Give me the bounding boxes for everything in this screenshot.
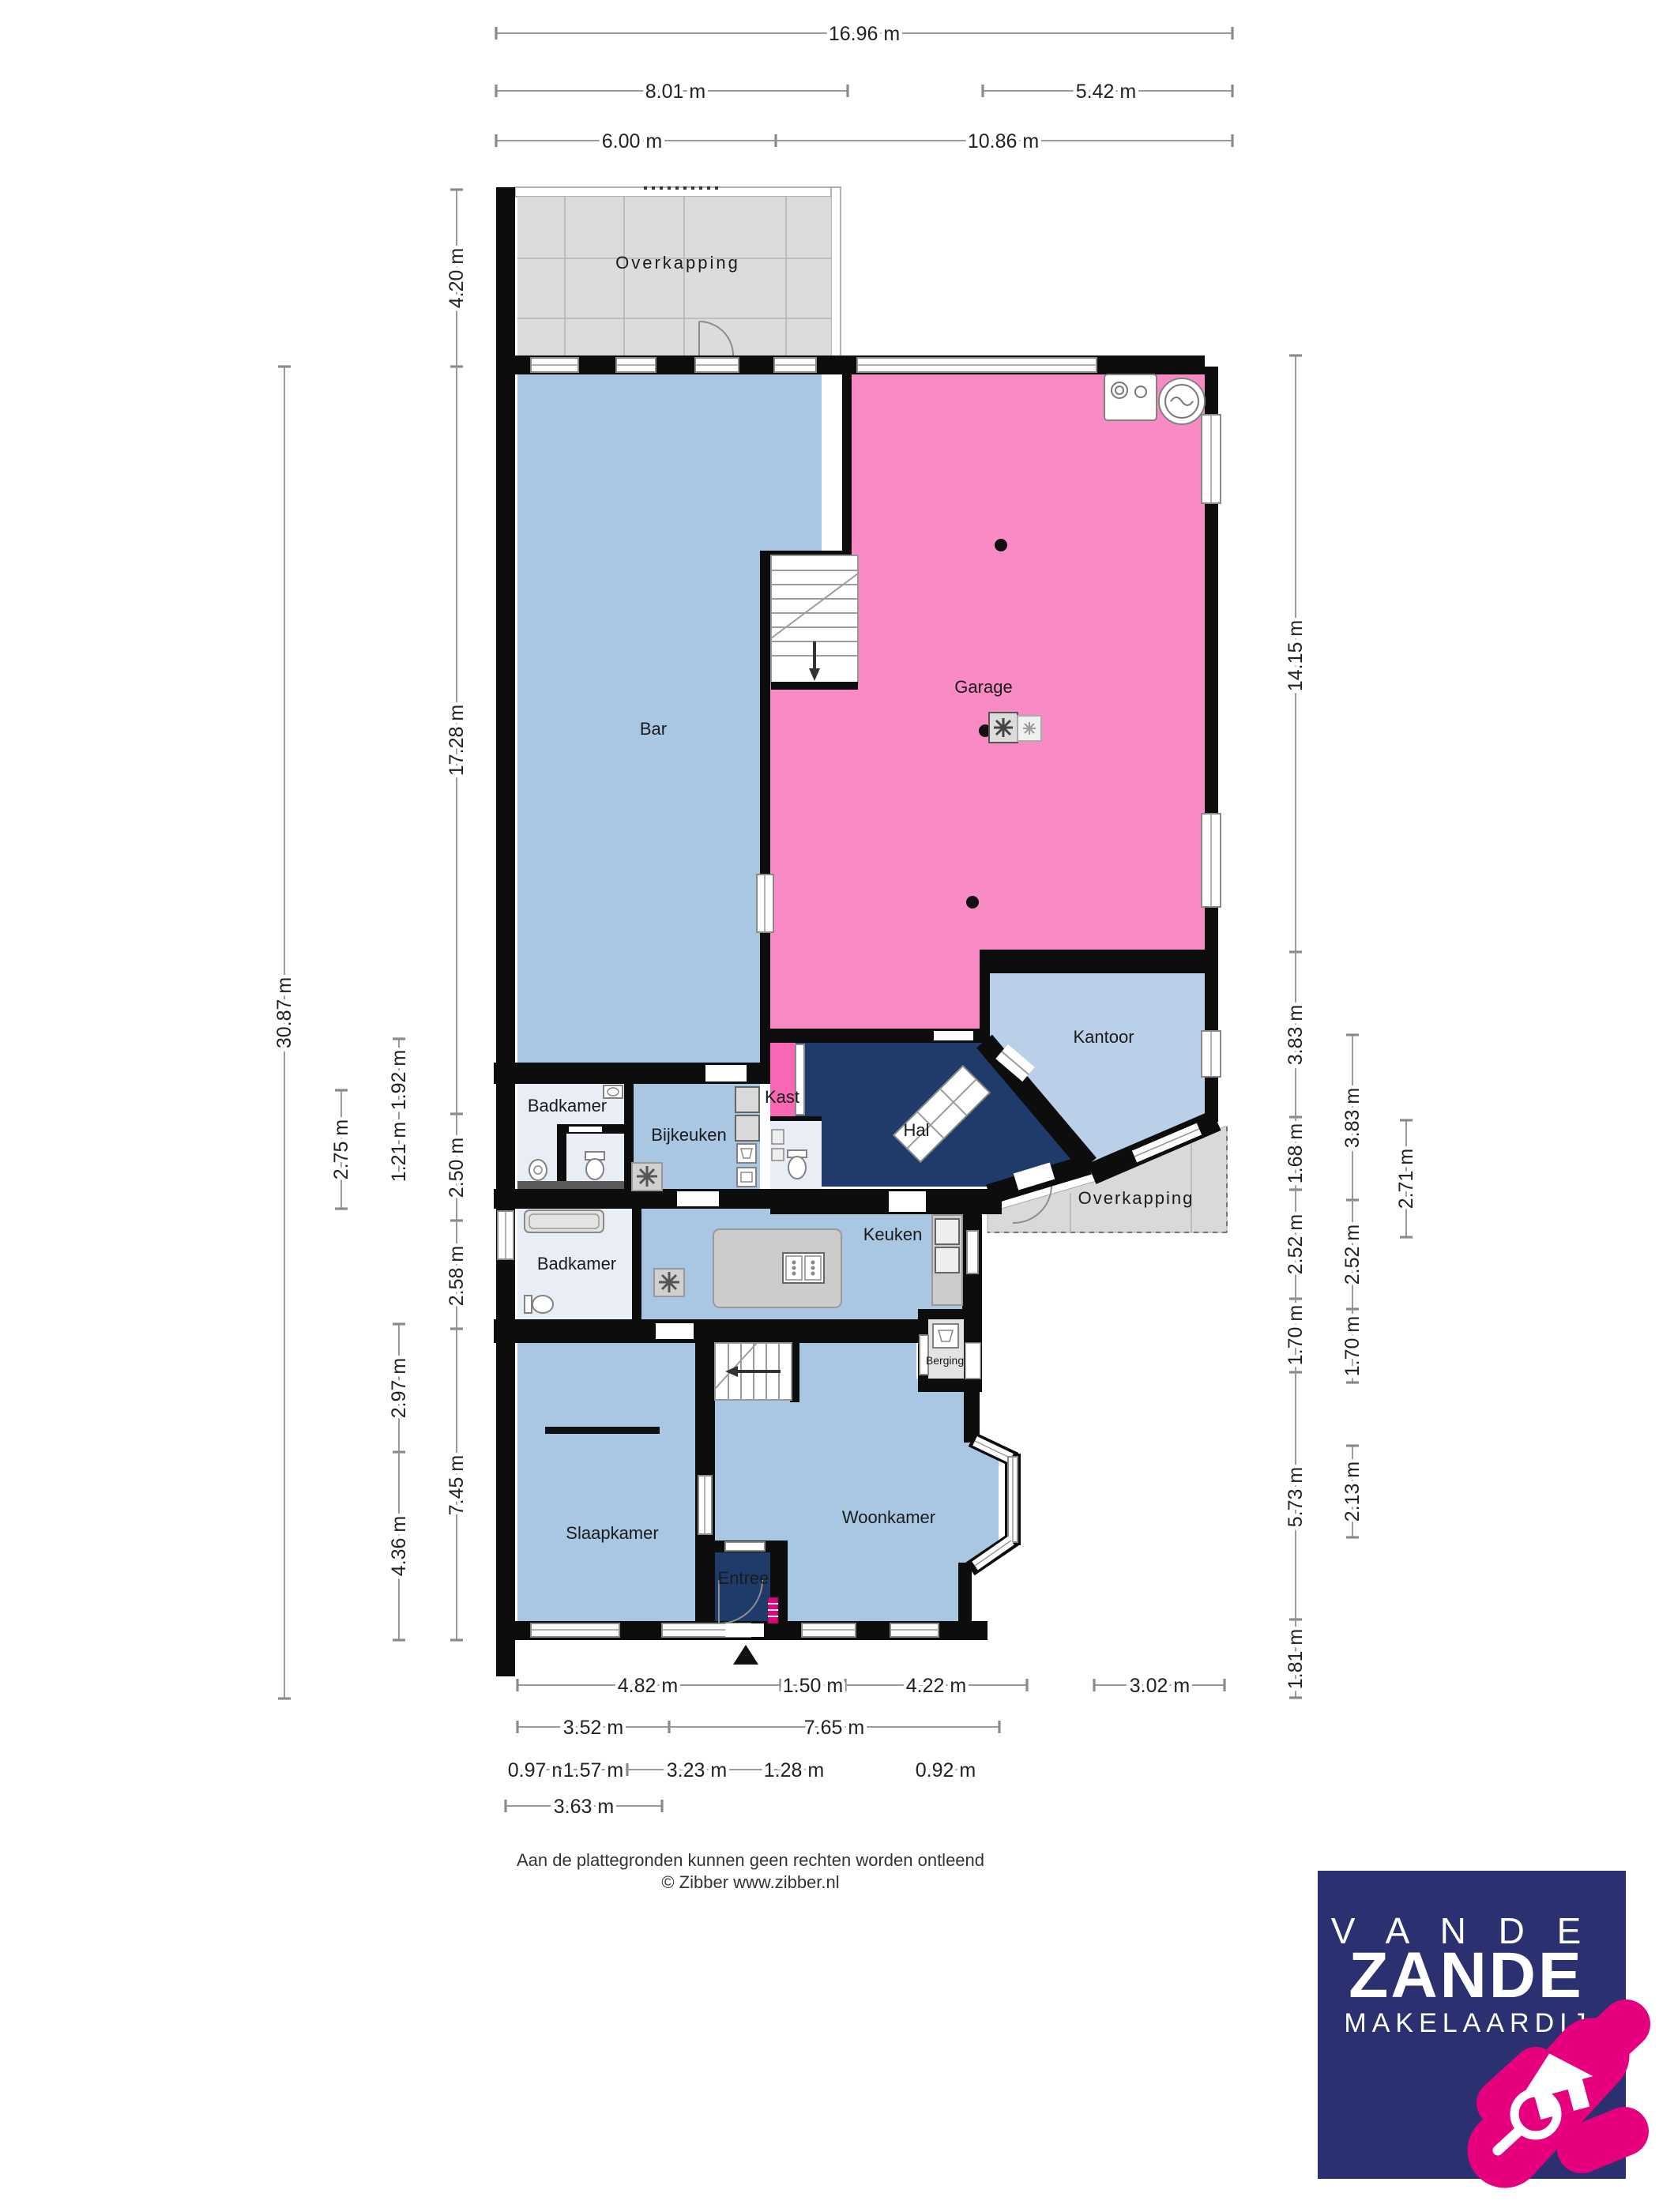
sink-icon [772, 1130, 784, 1144]
dim-label: 5.73 m [1285, 1467, 1307, 1527]
dim-label: 2.97 m [388, 1358, 410, 1418]
dim-label: 10.86 m [968, 130, 1039, 152]
room-label: Berging [926, 1354, 964, 1367]
room-label: Bijkeuken [651, 1125, 726, 1145]
dim-label: 3.83 m [1285, 1005, 1307, 1065]
room-slaapkamer [517, 1343, 695, 1621]
dim-label: 16.96 m [829, 23, 900, 45]
kitchen-island [713, 1229, 841, 1307]
room-label: Entree [718, 1568, 769, 1588]
dim-label: 3.83 m [1341, 1088, 1364, 1148]
room-label: Kantoor [1073, 1027, 1134, 1047]
dimensions-left: 4.20 m 17.28 m 2.50 m 2.58 m 7.45 m 1.92… [273, 190, 468, 1698]
dim-label: 4.82 m [618, 1675, 678, 1697]
dim-label: 4.20 m [446, 248, 468, 308]
wardrobe-line [545, 1427, 660, 1434]
dim-label: 3.52 m [563, 1717, 623, 1739]
dim-label: 2.58 m [446, 1246, 468, 1306]
dim-label: 7.45 m [446, 1455, 468, 1515]
room-label: Garage [954, 677, 1012, 697]
dim-label: 8.01 m [645, 81, 705, 103]
dim-label: 5.42 m [1076, 81, 1136, 103]
dim-label: 1.92 m [388, 1050, 410, 1110]
meter-cabinet-icon [768, 1597, 778, 1623]
dim-label: 3.63 m [554, 1796, 614, 1818]
boiler-icon [933, 1324, 958, 1348]
room-label: Overkapping [1078, 1188, 1194, 1208]
washer-dryer-icon [735, 1087, 759, 1187]
dim-label: 3.02 m [1130, 1675, 1190, 1697]
dim-label: 1.81 m [1285, 1629, 1307, 1689]
dim-label: 7.65 m [804, 1717, 864, 1739]
cabinet-icon [772, 1149, 784, 1161]
disclaimer-text: Aan de plattegronden kunnen geen rechten… [517, 1850, 984, 1870]
dim-label: 30.87 m [273, 977, 295, 1048]
toilet-icon [529, 1160, 547, 1180]
bathtub-icon [525, 1210, 604, 1232]
room-label: Kast [765, 1087, 799, 1107]
room-label: Badkamer [537, 1254, 616, 1273]
room-label: Overkapping [615, 253, 740, 273]
toilet-icon [788, 1150, 807, 1179]
dimensions-right: 14.15 m 3.83 m 1.68 m 2.52 m 1.70 m 5.73… [1285, 355, 1417, 1698]
room-label: Keuken [863, 1224, 923, 1244]
dim-label: 1.21 m [388, 1122, 410, 1182]
entrance-arrow-icon [733, 1645, 758, 1665]
stove-icon [783, 1253, 824, 1283]
logo-line-zande: ZANDE [1349, 1939, 1583, 2011]
dim-label: 1.57 m [563, 1759, 623, 1781]
fan-icon [632, 1163, 662, 1191]
toilet-icon [585, 1152, 604, 1179]
dim-label: 3.23 m [667, 1759, 727, 1781]
dim-label: 2.13 m [1341, 1461, 1364, 1522]
dim-label: 14.15 m [1285, 620, 1307, 691]
dim-label: 6.00 m [602, 130, 662, 152]
room-label: Woonkamer [842, 1507, 935, 1527]
dimensions-top: 16.96 m 8.01 m 5.42 m 6.00 m 10.86 m [496, 23, 1232, 152]
company-logo: V A N D E ZANDE MAKELAARDIJ [1318, 1871, 1626, 2179]
dim-label: 2.50 m [446, 1138, 468, 1198]
dim-label: 2.52 m [1341, 1224, 1364, 1285]
dim-label: 4.22 m [906, 1675, 966, 1697]
column-dot [995, 539, 1007, 551]
room-label: Hal [903, 1120, 929, 1140]
dryer-icon [1159, 378, 1205, 424]
dim-label: 2.52 m [1285, 1214, 1307, 1274]
door-gap [569, 1127, 602, 1132]
room-label: Badkamer [528, 1096, 607, 1115]
dim-label: 0.97 m [508, 1759, 568, 1781]
dim-label: 2.71 m [1395, 1149, 1417, 1209]
floorplan-drawing: 16.96 m 8.01 m 5.42 m 6.00 m 10.86 m 4.2… [0, 0, 1659, 2212]
logo-line-makelaardij: MAKELAARDIJ [1344, 2008, 1591, 2038]
dim-label: 1.70 m [1341, 1316, 1364, 1376]
room-label: Slaapkamer [566, 1523, 658, 1543]
footer: Aan de plattegronden kunnen geen rechten… [517, 1850, 984, 1892]
copyright-text: © Zibber www.zibber.nl [661, 1872, 839, 1892]
dim-label: 1.28 m [764, 1759, 824, 1781]
stairs-icon [715, 1343, 792, 1400]
floorplan-page: 16.96 m 8.01 m 5.42 m 6.00 m 10.86 m 4.2… [0, 0, 1659, 2212]
fan-icon [654, 1269, 684, 1296]
dim-label: 1.68 m [1285, 1123, 1307, 1183]
room-garage [770, 374, 1205, 1029]
dim-label: 1.50 m [783, 1675, 843, 1697]
toilet-icon [525, 1296, 553, 1313]
column-dot [966, 896, 979, 908]
washing-machine-icon [1104, 374, 1157, 420]
stairs-icon [771, 555, 858, 690]
heater-icon [989, 713, 1041, 743]
dim-label: 4.36 m [388, 1516, 410, 1576]
kitchen-counter [932, 1215, 962, 1305]
dimensions-bottom: 4.82 m 1.50 m 4.22 m 3.02 m 3.52 m 7.65 … [506, 1675, 1224, 1818]
dim-label: 2.75 m [330, 1119, 352, 1179]
dim-label: 0.92 m [916, 1759, 976, 1781]
room-label: Bar [640, 719, 667, 739]
dim-label: 1.70 m [1285, 1305, 1307, 1365]
dim-label: 17.28 m [446, 705, 468, 776]
